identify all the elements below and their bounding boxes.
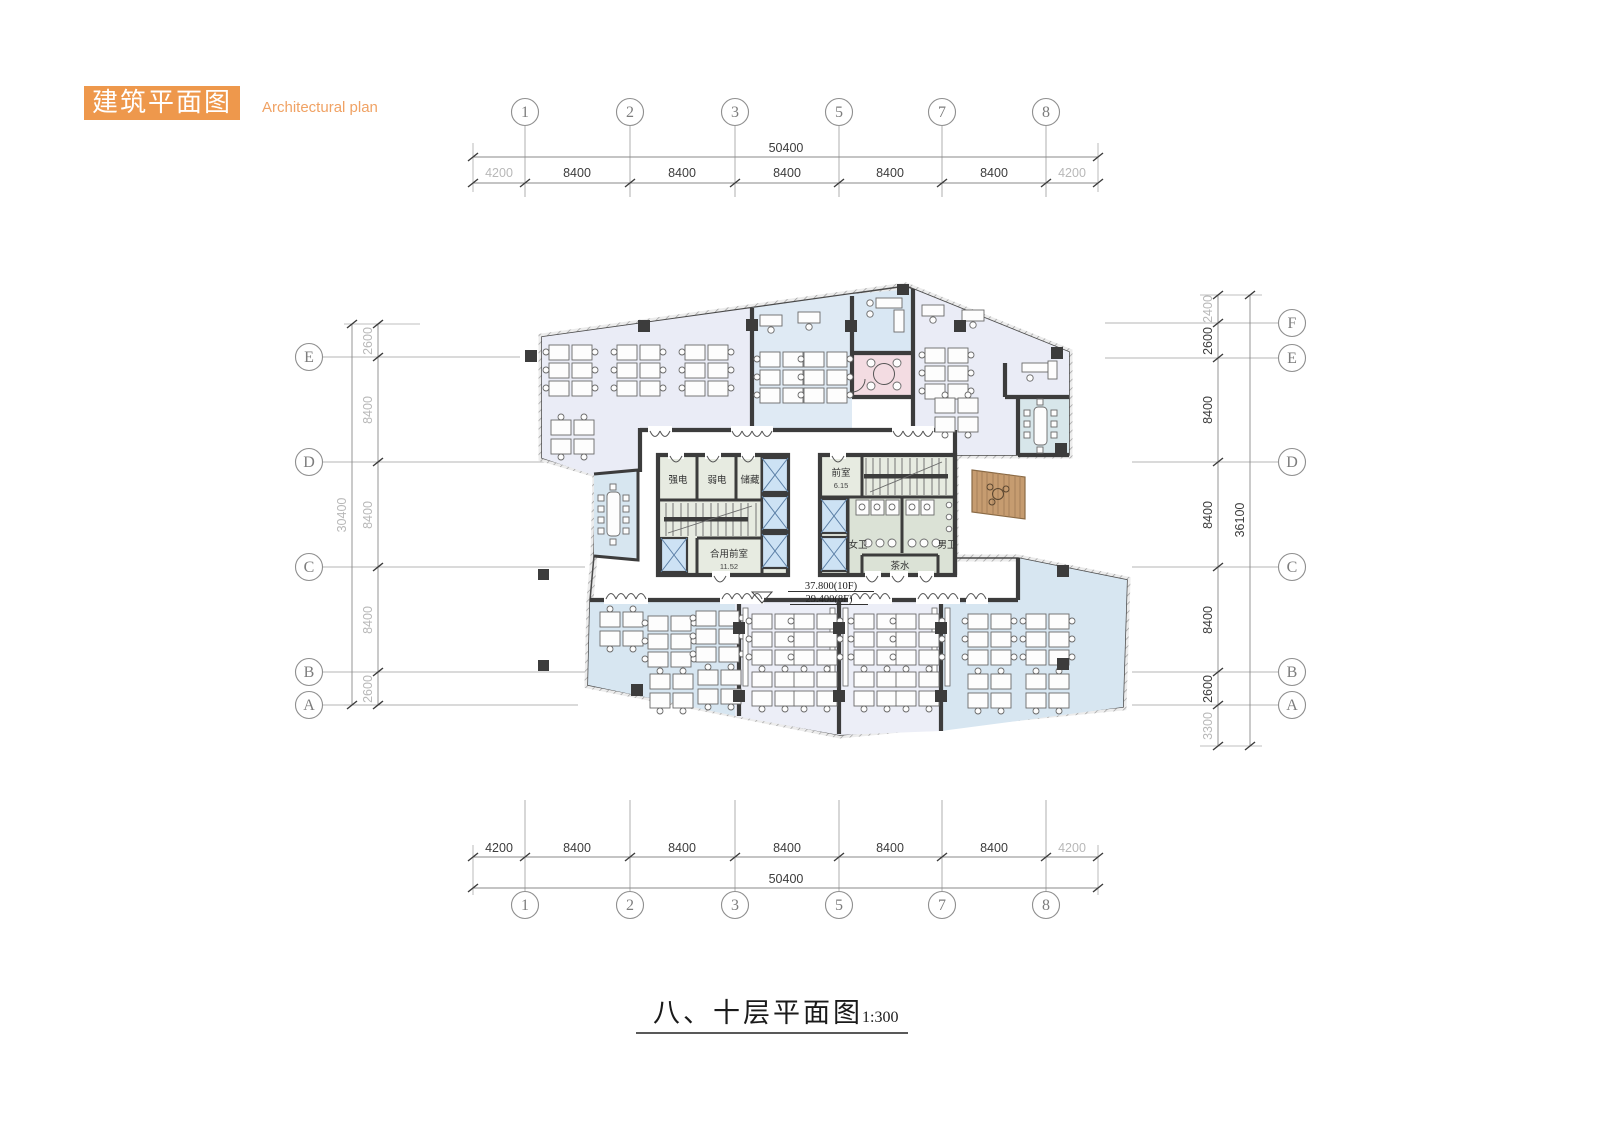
grid-bubble: 8 (1042, 897, 1050, 914)
dim-segment: 4200 (485, 166, 513, 180)
room-label-storage: 储藏 (740, 474, 760, 486)
grid-bubble: E (304, 349, 314, 366)
grid-bubble: E (1287, 350, 1297, 367)
terrace-deck (972, 470, 1025, 519)
grid-bubble: 5 (835, 897, 843, 914)
dim-total-right: 36100 (1233, 503, 1247, 538)
dim-total-top: 50400 (769, 141, 804, 155)
grid-bubble: B (304, 664, 315, 681)
dim-segment: 4200 (485, 841, 513, 855)
dim-segment: 8400 (668, 166, 696, 180)
room-label-shared-lobby: 合用前室 (710, 548, 748, 560)
room-label-strong-electric: 强电 (668, 474, 688, 486)
dim-segment: 8400 (773, 841, 801, 855)
grid-bubble: A (1286, 697, 1298, 714)
dim-segment: 8400 (563, 841, 591, 855)
grid-bottom: 1 2 3 5 7 8 (512, 800, 1060, 919)
dim-segment: 2600 (361, 675, 375, 703)
dim-segment: 2400 (1201, 295, 1215, 323)
room-label-weak-electric: 弱电 (707, 474, 727, 486)
dim-segment: 2600 (361, 327, 375, 355)
dim-segment: 8400 (1201, 501, 1215, 529)
dim-segment: 8400 (668, 841, 696, 855)
floor-plan-drawing: 1 2 3 5 7 8 50400 4200 8400 8400 8400 84… (0, 0, 1610, 1145)
level-8f: 29.400(8F) (806, 594, 853, 605)
room-area-shared-lobby: 11.52 (720, 562, 738, 571)
dim-segment: 2600 (1201, 675, 1215, 703)
grid-bubble: 3 (731, 104, 739, 121)
room-label-male-wc: 男卫 (937, 540, 957, 551)
room-label-ante-room: 前室 (831, 467, 850, 479)
room-area-ante-room: 6.15 (834, 481, 849, 490)
grid-bubble: 5 (835, 104, 843, 121)
grid-bubble: 3 (731, 897, 739, 914)
level-10f: 37.800(10F) (805, 581, 858, 592)
grid-bubble: 7 (938, 897, 946, 914)
grid-bubble: 2 (626, 104, 634, 121)
drawing-title: 八、十层平面图 (653, 998, 863, 1028)
page-title-english: Architectural plan (262, 99, 378, 116)
dim-segment: 8400 (563, 166, 591, 180)
architectural-plan-page: 建筑平面图 Architectural plan (0, 0, 1610, 1145)
grid-bubble: 1 (521, 897, 529, 914)
grid-bubble: 1 (521, 104, 529, 121)
dim-segment: 8400 (1201, 606, 1215, 634)
dim-total-bottom: 50400 (769, 872, 804, 886)
drawing-title-block: 八、十层平面图 1:300 (636, 998, 908, 1033)
dimensions-top: 50400 4200 8400 8400 8400 8400 8400 4200 (468, 141, 1103, 192)
dim-total-left: 30400 (335, 498, 349, 533)
grid-bubble: D (1286, 454, 1298, 471)
grid-bubble: 2 (626, 897, 634, 914)
grid-bubble: A (303, 697, 315, 714)
dim-segment: 8400 (980, 841, 1008, 855)
grid-bubble: D (303, 454, 315, 471)
grid-bubble: F (1288, 315, 1297, 332)
dim-segment: 8400 (361, 501, 375, 529)
room-label-female-wc: 女卫 (848, 539, 868, 551)
dim-segment: 8400 (980, 166, 1008, 180)
dim-segment: 4200 (1058, 841, 1086, 855)
dimensions-bottom: 50400 4200 8400 8400 8400 8400 8400 4200 (468, 841, 1103, 895)
grid-bubble: C (1287, 559, 1298, 576)
dim-segment: 8400 (1201, 396, 1215, 424)
dim-segment: 8400 (773, 166, 801, 180)
room-label-pantry: 茶水 (890, 560, 910, 572)
dim-segment: 8400 (361, 606, 375, 634)
page-title: 建筑平面图 (84, 86, 240, 120)
dim-segment: 2600 (1201, 327, 1215, 355)
grid-bubble: 8 (1042, 104, 1050, 121)
dim-segment: 8400 (876, 841, 904, 855)
dim-segment: 4200 (1058, 166, 1086, 180)
dimensions-left: 2600 8400 8400 8400 2600 30400 (335, 320, 420, 709)
grid-bubble: 7 (938, 104, 946, 121)
drawing-scale: 1:300 (862, 1009, 898, 1026)
dim-segment: 8400 (361, 396, 375, 424)
grid-bubble: C (304, 559, 315, 576)
dim-segment: 8400 (876, 166, 904, 180)
building-plan: 强电 弱电 储藏 合用前室 11.52 前室 6.15 女卫 男卫 茶水 37.… (525, 284, 1127, 735)
grid-bubble: B (1287, 664, 1298, 681)
dim-segment: 3300 (1201, 712, 1215, 740)
dimensions-right: 2400 2600 8400 8400 8400 2600 3300 36100 (1200, 291, 1262, 750)
